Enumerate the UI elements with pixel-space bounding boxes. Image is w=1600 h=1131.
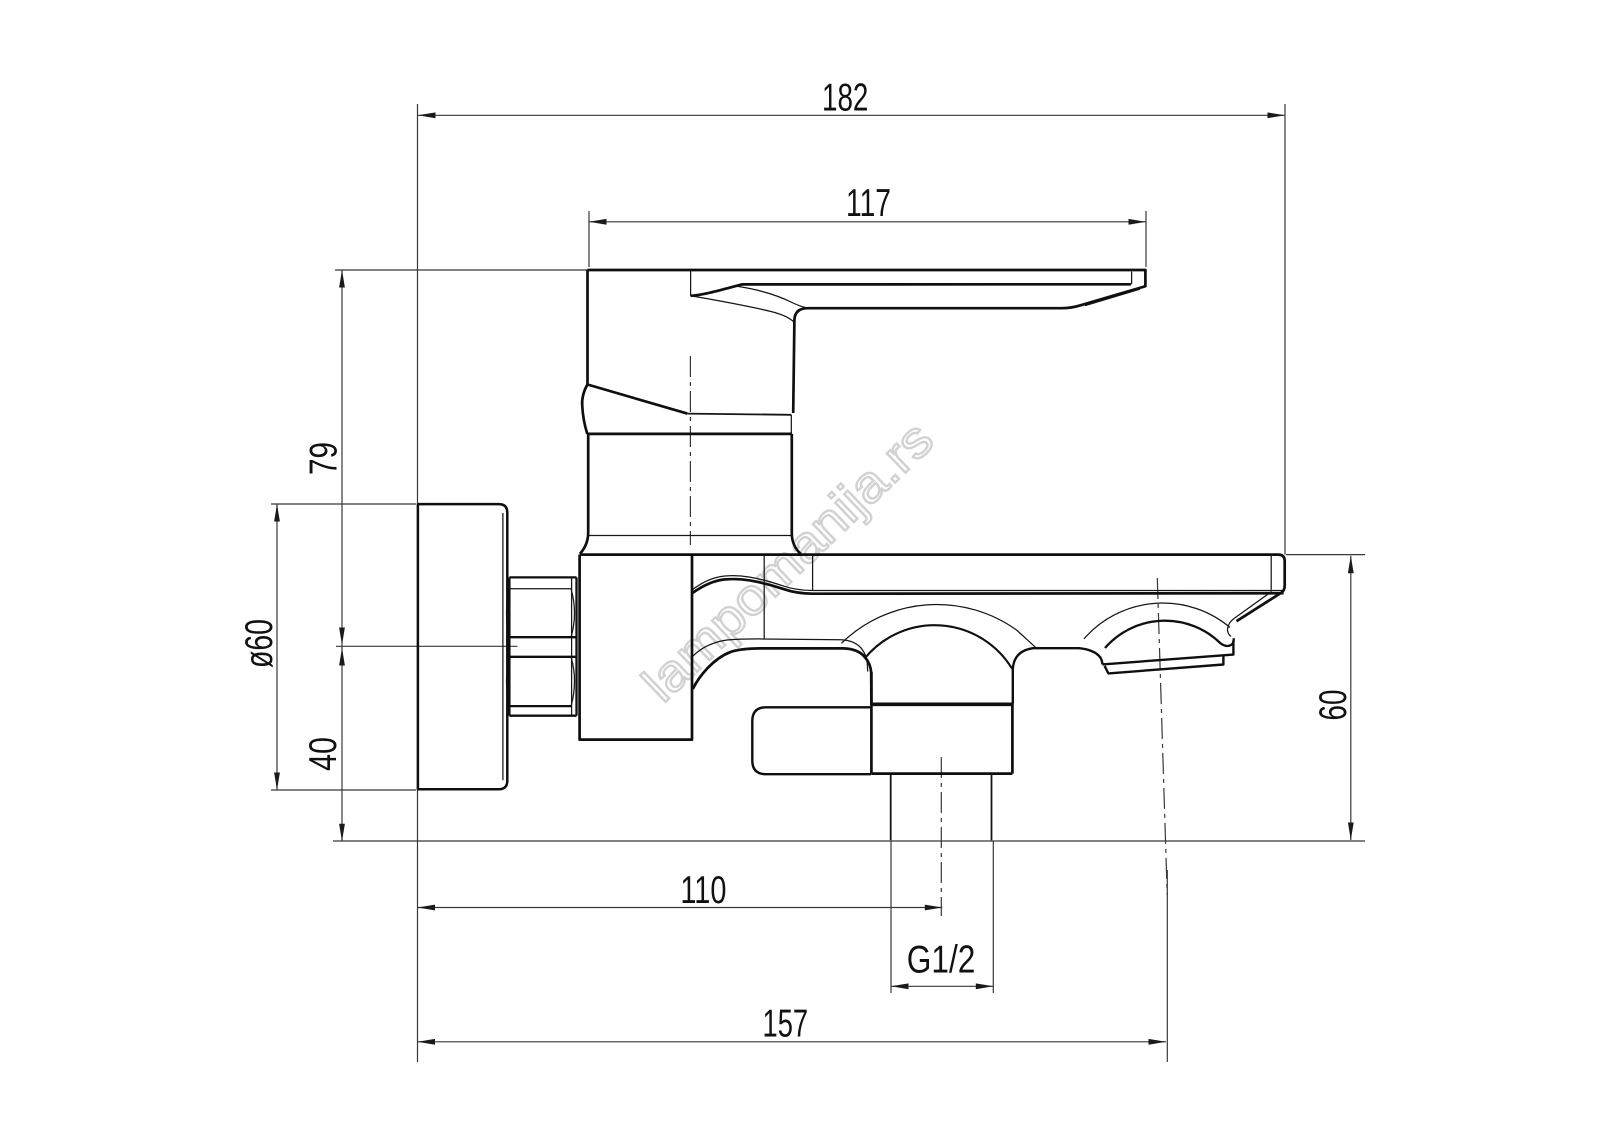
svg-text:G1/2: G1/2 [907, 939, 976, 982]
svg-text:157: 157 [763, 1002, 809, 1045]
svg-text:60: 60 [1312, 690, 1355, 721]
svg-text:182: 182 [822, 76, 868, 119]
svg-text:ø60: ø60 [238, 619, 281, 668]
svg-text:79: 79 [303, 442, 346, 475]
svg-text:110: 110 [680, 869, 726, 912]
svg-text:40: 40 [302, 737, 345, 771]
svg-text:117: 117 [846, 182, 891, 225]
